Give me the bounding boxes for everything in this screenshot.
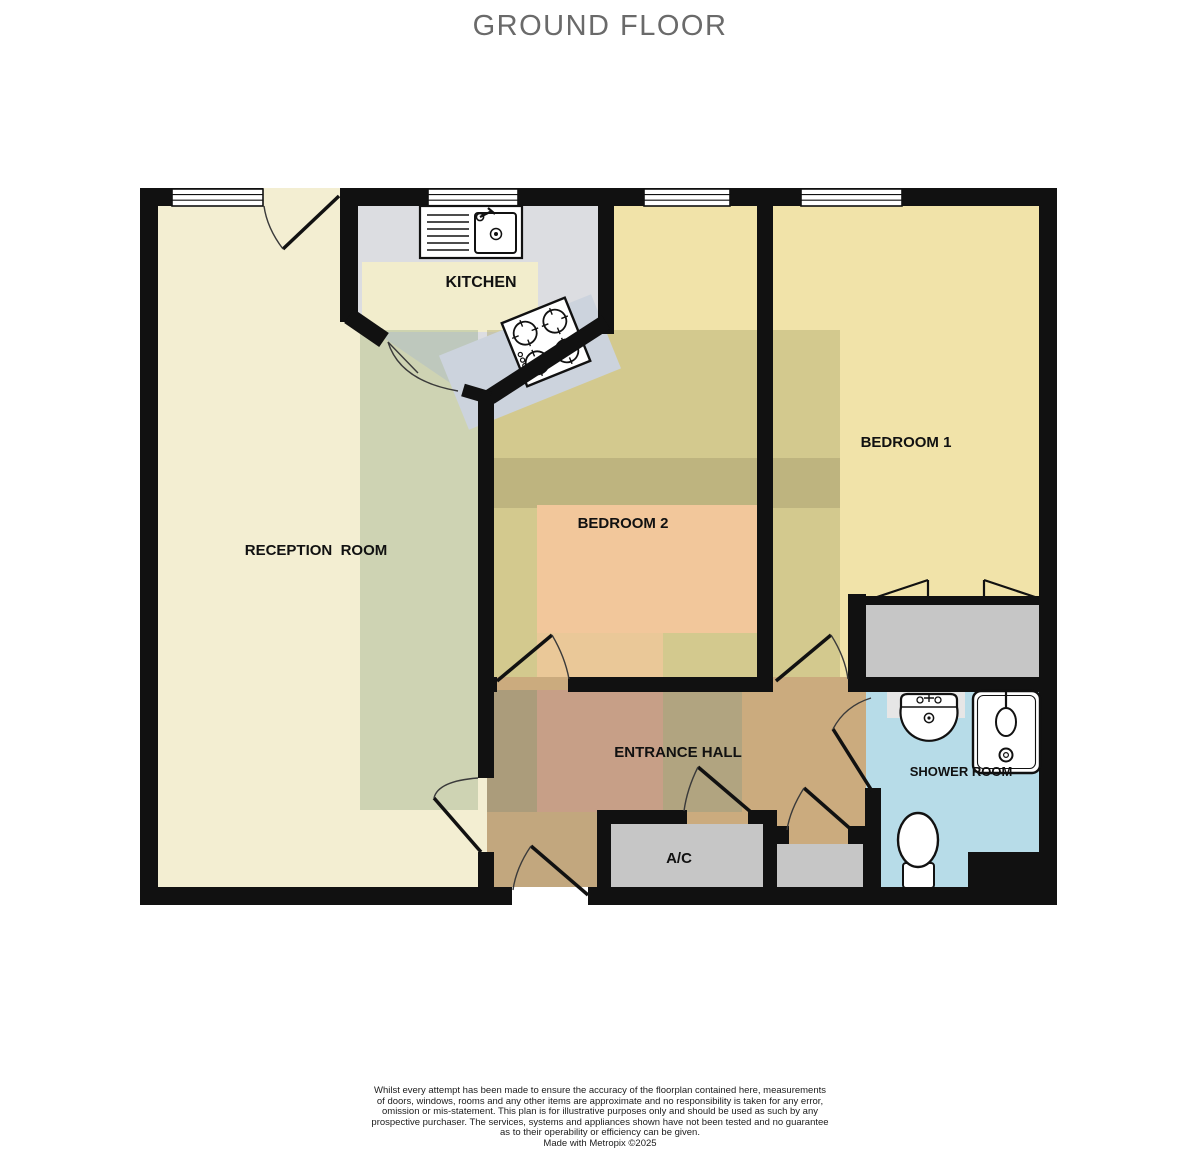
floorplan-canvas: RECEPTION ROOM KITCHEN BEDROOM 1 BEDROOM… bbox=[0, 0, 1200, 1144]
hall-left-tint bbox=[487, 690, 537, 812]
disclaimer-line: Whilst every attempt has been made to en… bbox=[0, 1086, 1200, 1097]
bedroom1-window-icon bbox=[801, 189, 902, 206]
bedroom2-peach-lower bbox=[537, 633, 663, 677]
patio-door-opening bbox=[263, 188, 340, 206]
shower-icon bbox=[973, 691, 1040, 773]
reception-room-label: RECEPTION ROOM bbox=[245, 542, 388, 559]
kitchen-label: KITCHEN bbox=[445, 274, 516, 291]
basin-icon bbox=[901, 694, 958, 741]
bedroom2-label: BEDROOM 2 bbox=[578, 515, 669, 532]
ac-label: A/C bbox=[666, 850, 692, 867]
wardrobe-area bbox=[856, 598, 1040, 677]
metropix-credit: Made with Metropix ©2025 bbox=[0, 1139, 1200, 1150]
shower-room-label: SHOWER ROOM bbox=[910, 764, 1013, 779]
storage-closet-area bbox=[777, 844, 863, 888]
hall-bottomleft-tint bbox=[487, 812, 600, 896]
front-door-opening bbox=[512, 887, 588, 905]
toilet-icon bbox=[898, 813, 938, 888]
bedroom1-label: BEDROOM 1 bbox=[861, 434, 952, 451]
bedroom-dark-band bbox=[487, 458, 840, 508]
kitchen-window-icon bbox=[428, 189, 518, 206]
bedroom2-window-icon bbox=[644, 189, 730, 206]
void-block bbox=[968, 852, 1044, 892]
disclaimer: Whilst every attempt has been made to en… bbox=[0, 1086, 1200, 1150]
kitchen-sink-icon bbox=[420, 206, 522, 258]
reception-window-icon bbox=[172, 189, 263, 206]
entrance-hall-label: ENTRANCE HALL bbox=[614, 744, 742, 761]
